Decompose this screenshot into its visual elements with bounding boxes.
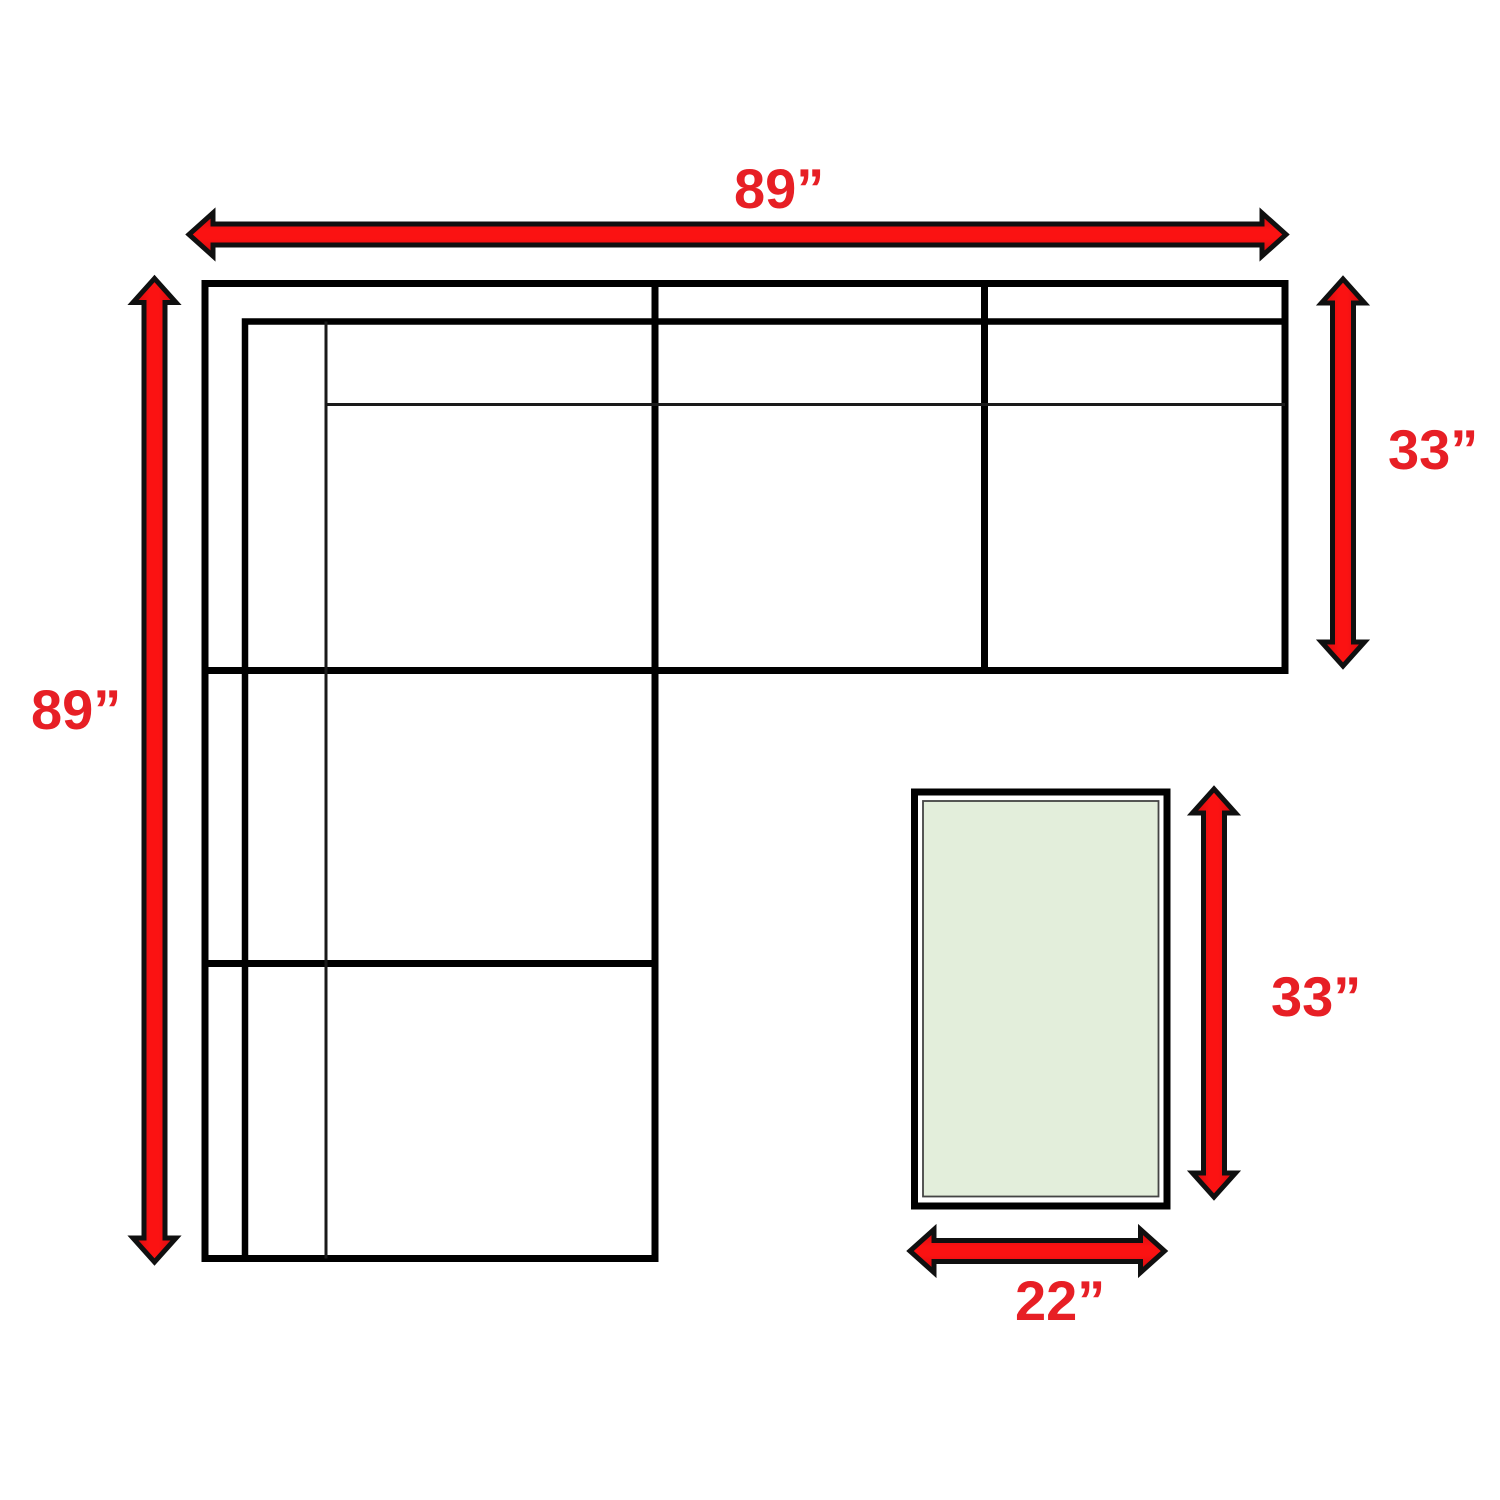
svg-text:22”: 22” [1015, 1269, 1105, 1332]
svg-text:33”: 33” [1271, 965, 1361, 1028]
svg-text:89”: 89” [734, 157, 824, 220]
svg-text:89”: 89” [31, 678, 121, 741]
svg-text:33”: 33” [1388, 418, 1478, 481]
